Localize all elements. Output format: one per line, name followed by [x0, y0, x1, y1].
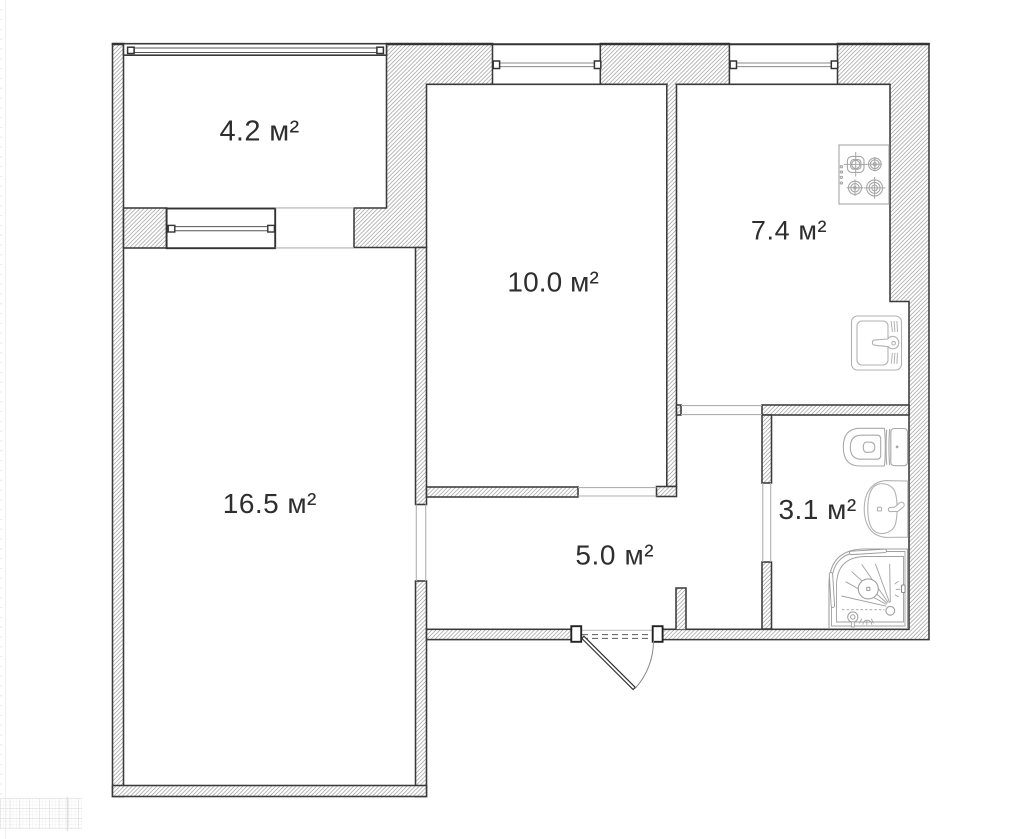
svg-text:7.4 м²: 7.4 м² [751, 216, 827, 246]
svg-text:3.1 м²: 3.1 м² [778, 494, 856, 525]
svg-text:10.0 м²: 10.0 м² [507, 266, 599, 297]
svg-text:16.5 м²: 16.5 м² [223, 488, 317, 519]
svg-text:4.2 м²: 4.2 м² [219, 116, 299, 148]
svg-text:5.0 м²: 5.0 м² [575, 539, 654, 570]
